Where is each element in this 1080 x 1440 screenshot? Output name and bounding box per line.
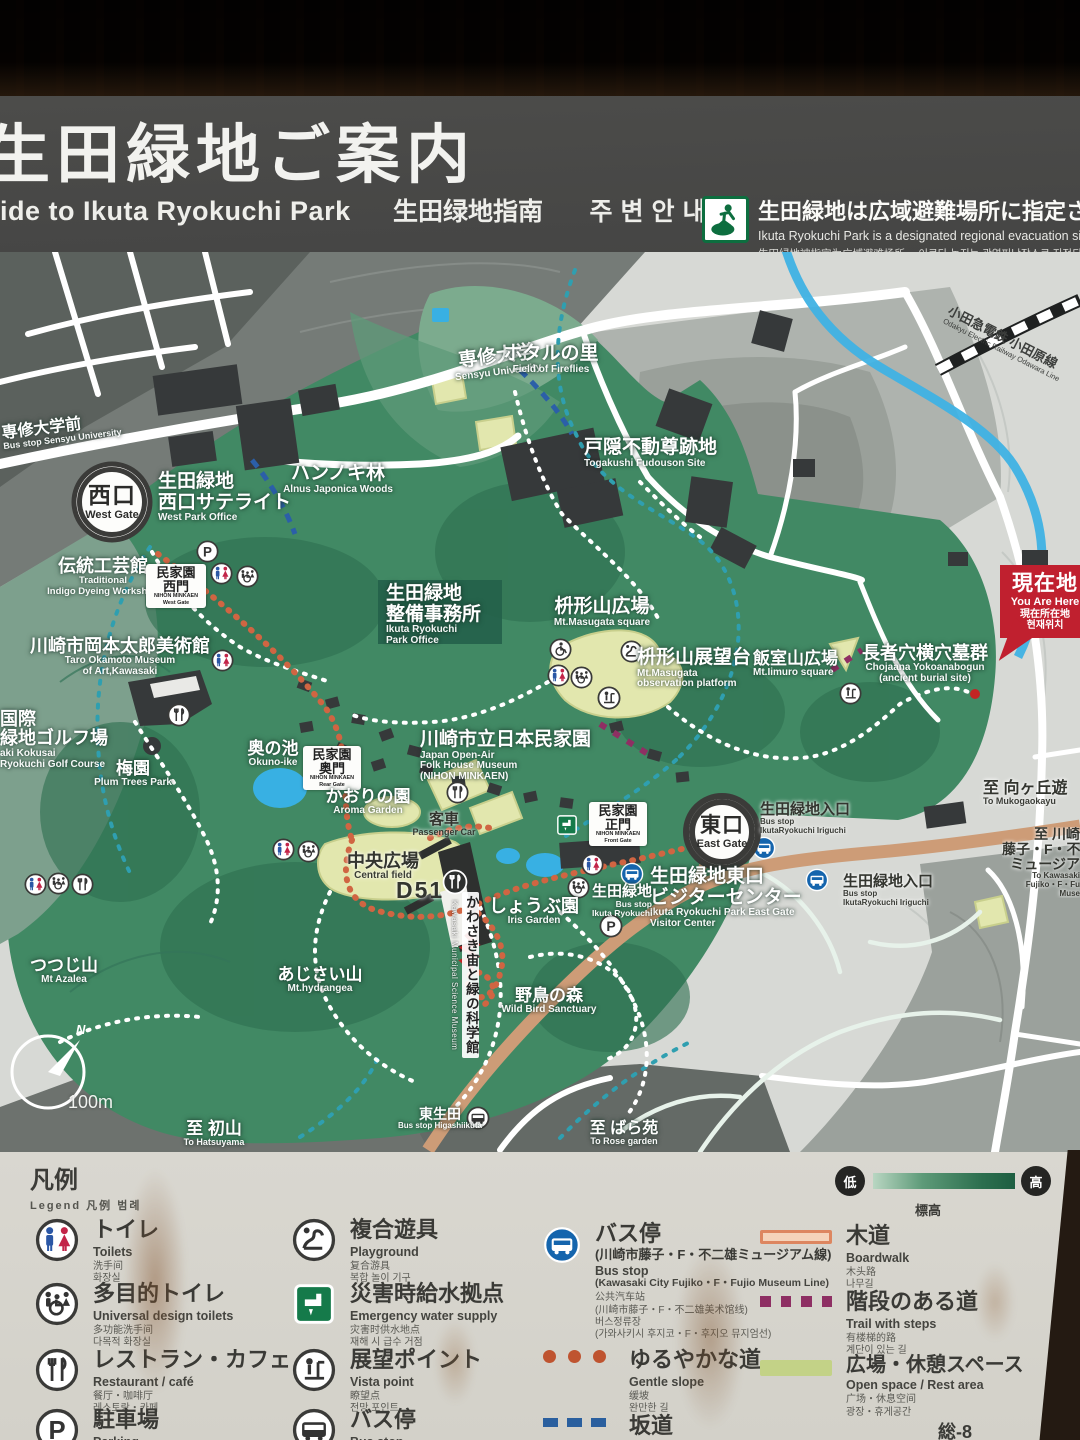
gentle-slope-swatch: [543, 1350, 615, 1370]
label-alnus-woods: ハンノキ林Alnus Japonica Woods: [283, 464, 393, 495]
legend-item-open-space: 広場・休憩スペースOpen space / Rest area 广场・休息空间광…: [760, 1354, 1024, 1418]
label-science-museum: かわさき宙と緑の科学館: [462, 892, 479, 1058]
universal-toilets-icon: [568, 877, 588, 897]
label-burial-site: 長者穴横穴墓群 Chojaana Yokoanabogun (ancient b…: [862, 644, 988, 685]
evacuation-note: 生田緑地は広域避難場所に指定されて Ikuta Ryokuchi Park is…: [758, 194, 1080, 252]
label-wild-bird: 野鳥の森Wild Bird Sanctuary: [502, 987, 597, 1016]
label-azalea: つつじ山Mt Azalea: [30, 957, 98, 986]
label-bus-iriguchi-1: 生田緑地入口 Bus stop IkutaRyokuchi Iriguchi: [760, 802, 850, 835]
universal-toilets-icon: [571, 667, 591, 687]
toilets-icon: [273, 839, 293, 859]
minkaen-front-gate-box: 民家園 正門 NIHON MINKAEN Front Gate: [589, 802, 647, 846]
minkaen-rear-gate-box: 民家園 奥門 NIHON MINKAEN Rear Gate: [303, 746, 361, 790]
legend-item-slope: 坂道Slope: [543, 1414, 673, 1440]
label-bus-higashiikuta: 東生田 Bus stop Higashiikuta: [398, 1107, 482, 1131]
label-hydrangea: あじさい山Mt.hydrangea: [278, 966, 363, 995]
legend-item-playground: 複合遊具Playground 复合游具복합 놀이 기구: [292, 1218, 438, 1284]
page-code: 総-8: [938, 1418, 972, 1440]
open-space-swatch: [760, 1360, 832, 1376]
label-d51: D51: [396, 878, 444, 903]
subtitle-korean: 주변안내: [590, 198, 714, 226]
bus-stop-icon: [806, 869, 827, 890]
label-science-museum-en: Kawasaki Municipal Science Museum: [450, 900, 459, 1050]
label-to-kawasaki-fujiko: 至 川崎 藤子・F・不二 ミュージア To Kawasaki Fujiko・F・…: [1002, 827, 1080, 898]
label-plum-park: 梅園Plum Trees Park: [94, 760, 172, 789]
label-masugata-square: 枡形山広場Mt.Masugata square: [554, 597, 650, 628]
parking-icon: [197, 541, 217, 561]
label-visitor-center: 生田緑地東口 ビジターセンター Ikuta Ryokuchi Park East…: [650, 867, 802, 930]
toilets-icon: [548, 665, 568, 685]
toilets-icon: [582, 854, 602, 874]
legend-item-toilets: トイレToilets 洗手间화장실: [35, 1218, 159, 1284]
label-to-rose-garden: 至 ばら苑 To Rose garden: [590, 1120, 658, 1147]
museum-bus-icon: [543, 1226, 581, 1264]
vista-point-icon: [598, 687, 619, 708]
label-indigo-workshop: 伝統工芸館 Traditional Indigo Dyeing Workshop: [47, 557, 159, 597]
legend-item-emergency-water: 災害時給水拠点Emergency water supply 灾害时供水地点재해 …: [292, 1282, 504, 1348]
subtitle-english: ide to Ikuta Ryokuchi Park: [0, 196, 351, 226]
label-bus-iriguchi-2: 生田緑地入口 Bus stop IkutaRyokuchi Iriguchi: [843, 874, 933, 907]
sign-subtitle-row: ide to Ikuta Ryokuchi Park 生田绿地指南 주변안내: [0, 192, 714, 228]
label-taro-museum: 川崎市岡本太郎美術館 Taro Okamoto Museum of Art,Ka…: [30, 637, 210, 678]
label-masugata-observation: 枡形山展望台 Mt.Masugata observation platform: [637, 648, 751, 690]
legend-panel: 凡例 Legend 凡例 범례 低 高 標高 トイレToilets 洗手间화장실…: [0, 1152, 1080, 1440]
label-golf-course: 国際 緑地ゴルフ場 aki Kokusai Ryokuchi Golf Cour…: [0, 710, 108, 770]
you-are-here-dot: [970, 689, 980, 699]
label-west-park-office: 生田緑地 西口サテライト West Park Office: [158, 472, 291, 524]
bus-stop-icon: [621, 863, 642, 884]
wood-frame-top: [0, 0, 1080, 96]
you-are-here-badge: 現在地 You Are Here 現在所在地 현재위치: [1000, 565, 1080, 638]
east-gate: 東口East Gate: [689, 799, 755, 865]
legend-item-boardwalk: 木道Boardwalk 木头路나무길: [760, 1224, 909, 1290]
label-okuno-ike: 奥の池Okuno-ike: [248, 740, 299, 769]
legend-item-parking: 駐車場Parking: [35, 1408, 159, 1440]
legend-item-bus-stop: 複合遊具 バス停Bus stop: [292, 1408, 416, 1440]
label-to-mukogaoka: 至 向ヶ丘遊 To Mukogaokayu: [983, 780, 1067, 807]
legend-item-gentle-slope: ゆるやかな道Gentle slope 缓坡완만한 길: [543, 1348, 761, 1414]
toilets-icon: [35, 1218, 79, 1262]
toilets-icon: [25, 874, 45, 894]
label-passenger-car: 客車Passenger Car: [412, 812, 475, 838]
label-aroma-garden: かおりの園Aroma Garden: [326, 788, 411, 817]
west-gate: 西口West Gate: [77, 467, 147, 537]
wheelchair-icon: [550, 639, 570, 659]
toilets-icon: [212, 650, 232, 670]
legend-item-steps: 階段のある道Trail with steps 有楼梯的路계단이 있는 길: [760, 1290, 978, 1356]
slope-swatch: [543, 1418, 615, 1438]
evacuation-site-icon: [702, 196, 749, 243]
vista-point-icon: [292, 1348, 336, 1392]
park-map: 専修大学Sensyu University 専修大学前Bus stop Sens…: [0, 252, 1080, 1152]
label-to-hatsuyama: 至 初山 To Hatsuyama: [184, 1120, 245, 1148]
label-iris-garden: しょうぶ園Iris Garden: [489, 897, 579, 927]
steps-swatch: [760, 1296, 832, 1316]
restaurant-icon: [35, 1348, 79, 1392]
label-fireflies: ホタルの里Field of Fireflies: [503, 344, 598, 375]
restaurant-icon: [444, 871, 467, 894]
restaurant-icon: [168, 704, 189, 725]
toilets-icon: [211, 563, 231, 583]
emergency-water-icon: [292, 1282, 336, 1326]
label-togakushi: 戸隠不動尊跡地Togakushi Fudouson Site: [584, 438, 717, 469]
bus-stop-icon: [292, 1408, 336, 1440]
legend-item-universal-toilets: 多目的トイレUniversal design toilets 多功能洗手间다목적…: [35, 1282, 233, 1348]
vista-point-icon: [840, 683, 860, 703]
universal-toilets-icon: [237, 566, 257, 586]
playground-icon: [292, 1218, 336, 1262]
legend-item-vista-point: 展望ポイントVista point 瞭望点전망 포인트: [292, 1348, 482, 1414]
universal-toilets-icon: [48, 873, 68, 893]
minkaen-west-gate-box: 民家園 西門 NIHON MINKAEN West Gate: [146, 564, 206, 608]
map-terrain: [0, 252, 1080, 1152]
boardwalk-swatch: [760, 1230, 832, 1244]
subtitle-chinese: 生田绿地指南: [393, 198, 543, 226]
legend-title: 凡例 Legend 凡例 범례: [30, 1160, 141, 1213]
scale-label: 100m: [68, 1092, 113, 1113]
parking-icon: [35, 1408, 79, 1440]
restaurant-icon: [72, 874, 92, 894]
legend-item-restaurant: レストラン・カフェRestaurant / café 餐厅・咖啡厅레스토랑・카페: [35, 1348, 291, 1414]
emergency-water-icon: [558, 816, 576, 834]
sign-title: 生田緑地ご案内: [0, 104, 476, 196]
compass-n-label: N: [76, 1022, 85, 1037]
parking-icon: [600, 915, 621, 936]
universal-toilets-icon: [35, 1282, 79, 1326]
restaurant-icon: [447, 782, 467, 802]
label-bus-ikuta: 生田緑地 Bus stop Ikuta Ryokuchi: [592, 884, 652, 919]
sign-header: 生田緑地ご案内 ide to Ikuta Ryokuchi Park 生田绿地指…: [0, 96, 1080, 252]
universal-toilets-icon: [298, 841, 318, 861]
label-minkaen: 川崎市立日本民家園 Japan Open-Air Folk House Muse…: [420, 730, 591, 783]
label-iimuro-square: 飯室山広場Mt.Iimuro square: [753, 650, 838, 679]
label-park-office: 生田緑地 整備事務所 Ikuta Ryokuchi Park Office: [386, 584, 481, 647]
